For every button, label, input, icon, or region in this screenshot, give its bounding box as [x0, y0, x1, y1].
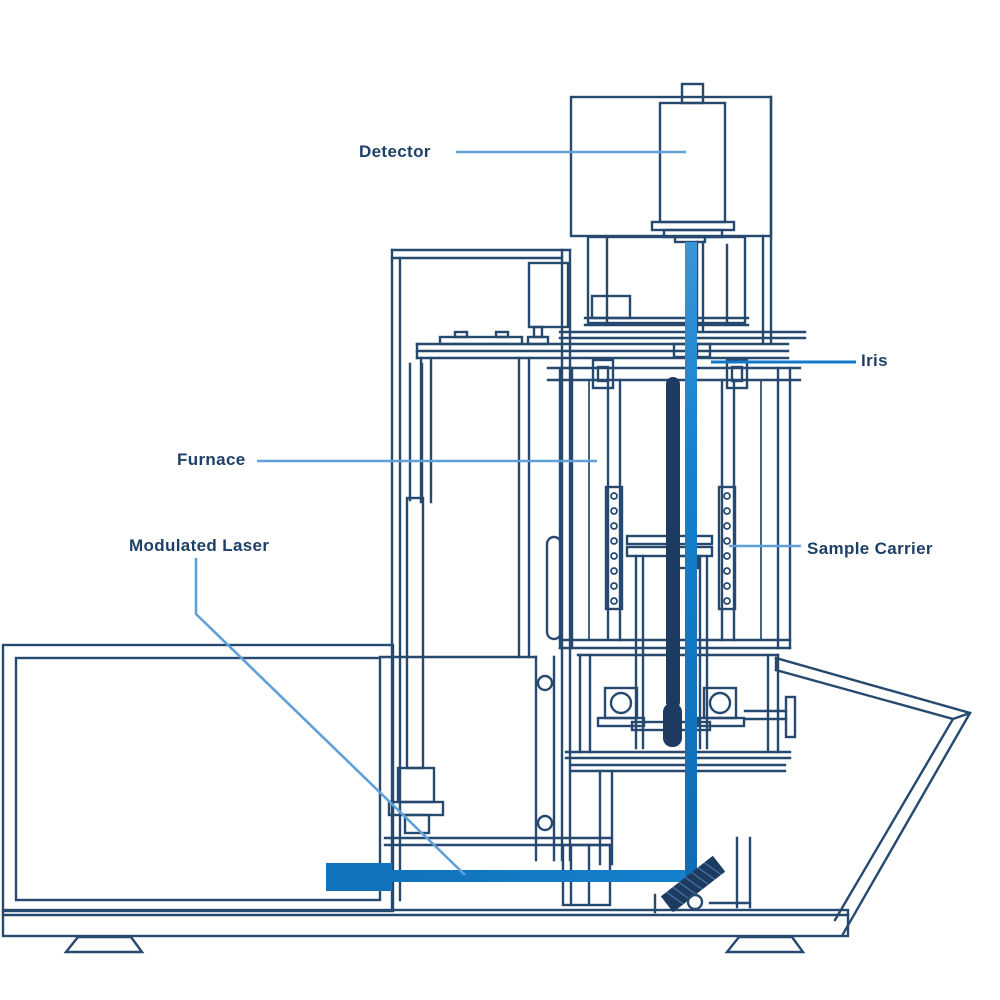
- open-side-panel: [776, 658, 970, 934]
- upper-frame: [560, 237, 805, 338]
- mirror-pivot: [688, 895, 702, 909]
- clamp-bar: [440, 337, 522, 344]
- leader-lines: [196, 152, 856, 875]
- sample-rod: [666, 377, 680, 709]
- flange-clamp: [593, 360, 613, 388]
- sample-rod-tip: [663, 703, 682, 747]
- label-detector: Detector: [359, 142, 431, 162]
- schematic-drawing: [0, 0, 1000, 1000]
- right-foot: [727, 937, 803, 952]
- actuator-block: [398, 768, 434, 802]
- small-box: [592, 296, 630, 318]
- detector-cylinder: [660, 103, 725, 222]
- base-plate: [3, 910, 848, 952]
- label-furnace: Furnace: [177, 450, 246, 470]
- bolt-circle: [538, 816, 552, 830]
- detector-assembly: [571, 84, 771, 343]
- beam-vertical: [685, 242, 697, 878]
- detector-housing: [571, 97, 771, 236]
- modulated-laser-leader: [196, 558, 465, 875]
- detector-nub: [682, 84, 703, 103]
- flange-clamp: [727, 360, 747, 388]
- bolt-circle: [538, 676, 552, 690]
- laser-flash-apparatus-diagram: Detector Iris Furnace Sample Carrier Mod…: [0, 0, 1000, 1000]
- label-iris: Iris: [861, 351, 888, 371]
- laser-source-box: [326, 863, 392, 891]
- push-rod: [389, 364, 443, 833]
- label-modulated-laser: Modulated Laser: [129, 536, 269, 556]
- beam-horizontal: [391, 870, 689, 882]
- left-foot: [66, 937, 142, 952]
- label-sample-carrier: Sample Carrier: [807, 539, 933, 559]
- sample-carrier-assembly: [627, 377, 712, 748]
- support-tower: [380, 250, 570, 910]
